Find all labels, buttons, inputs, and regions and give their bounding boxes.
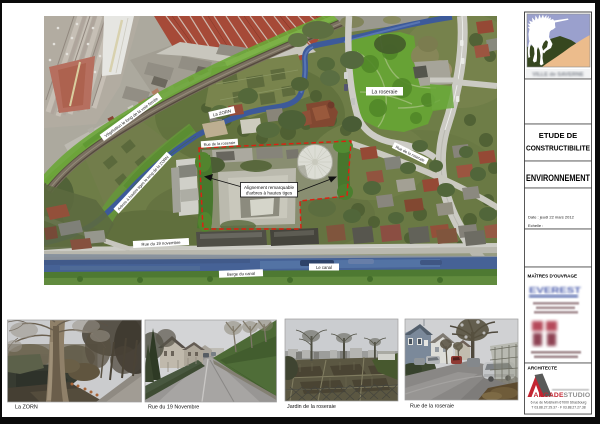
svg-text:d'arbres à hautes tiges: d'arbres à hautes tiges [246, 191, 293, 196]
svg-text:VILLE de SAVERNE: VILLE de SAVERNE [532, 72, 584, 78]
svg-text:La roseraie: La roseraie [372, 90, 398, 96]
svg-text:CONSTRUCTIBILITE: CONSTRUCTIBILITE [526, 144, 590, 153]
svg-text:Le canal: Le canal [316, 265, 332, 270]
svg-text:Rue de la roseraie: Rue de la roseraie [410, 404, 454, 410]
svg-text:STUDIO: STUDIO [564, 392, 591, 399]
svg-text:Echelle :: Echelle : [528, 223, 543, 228]
svg-text:Rue du 19 Novembre: Rue du 19 Novembre [148, 405, 199, 411]
svg-text:ETUDE DE: ETUDE DE [539, 131, 577, 140]
svg-text:6 rue de Molsheim 67000 Stras: 6 rue de Molsheim 67000 Strasbourg [531, 401, 587, 405]
svg-text:ARCADE: ARCADE [534, 392, 565, 399]
svg-text:EVEREST: EVEREST [529, 285, 582, 295]
svg-text:T 03.88.27.29.37 - F 03.88.27.: T 03.88.27.29.37 - F 03.88.27.27.38 [531, 406, 585, 410]
svg-text:MAÎTRES D'OUVRAGE: MAÎTRES D'OUVRAGE [528, 272, 578, 279]
svg-text:La ZORN: La ZORN [15, 405, 38, 411]
svg-text:Jardin de la roseraie: Jardin de la roseraie [287, 404, 336, 410]
svg-text:Berge du canal: Berge du canal [227, 271, 255, 277]
svg-text:ARCHITECTE: ARCHITECTE [528, 366, 558, 371]
svg-text:Alignement remarquable: Alignement remarquable [244, 185, 294, 190]
svg-text:ENVIRONNEMENT: ENVIRONNEMENT [526, 173, 591, 183]
svg-text:Date : jeudi 22 mars 2012: Date : jeudi 22 mars 2012 [528, 215, 575, 220]
